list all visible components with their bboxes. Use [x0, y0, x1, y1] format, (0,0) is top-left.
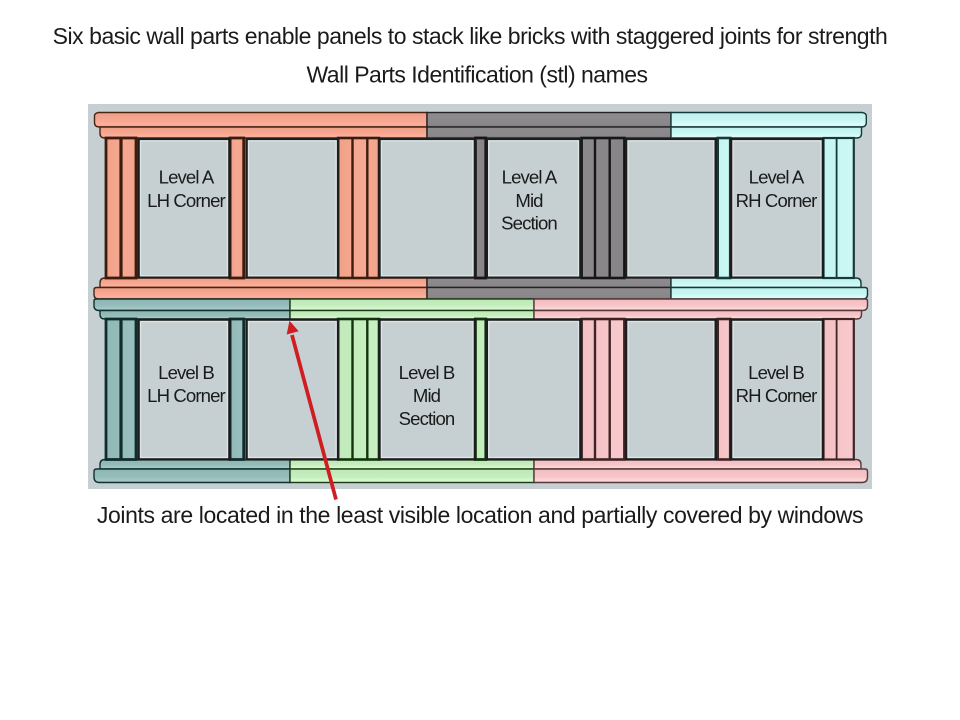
svg-text:Level A: Level A	[749, 167, 805, 188]
svg-text:Level B: Level B	[158, 362, 214, 383]
svg-text:RH Corner: RH Corner	[736, 190, 817, 211]
svg-text:Level B: Level B	[748, 362, 804, 383]
svg-text:Level A: Level A	[502, 167, 558, 188]
svg-text:Six basic wall parts enable pa: Six basic wall parts enable panels to st…	[53, 23, 888, 49]
svg-text:Joints are located in the leas: Joints are located in the least visible …	[97, 502, 863, 528]
svg-text:Mid: Mid	[515, 190, 543, 211]
svg-text:Mid: Mid	[413, 385, 441, 406]
svg-text:RH Corner: RH Corner	[736, 385, 817, 406]
svg-text:Section: Section	[399, 408, 455, 429]
svg-text:LH Corner: LH Corner	[147, 190, 225, 211]
svg-text:Level B: Level B	[399, 362, 455, 383]
svg-text:LH Corner: LH Corner	[147, 385, 225, 406]
svg-text:Section: Section	[501, 213, 557, 234]
svg-text:Level A: Level A	[159, 167, 215, 188]
svg-text:Wall Parts Identification (stl: Wall Parts Identification (stl) names	[306, 62, 647, 88]
